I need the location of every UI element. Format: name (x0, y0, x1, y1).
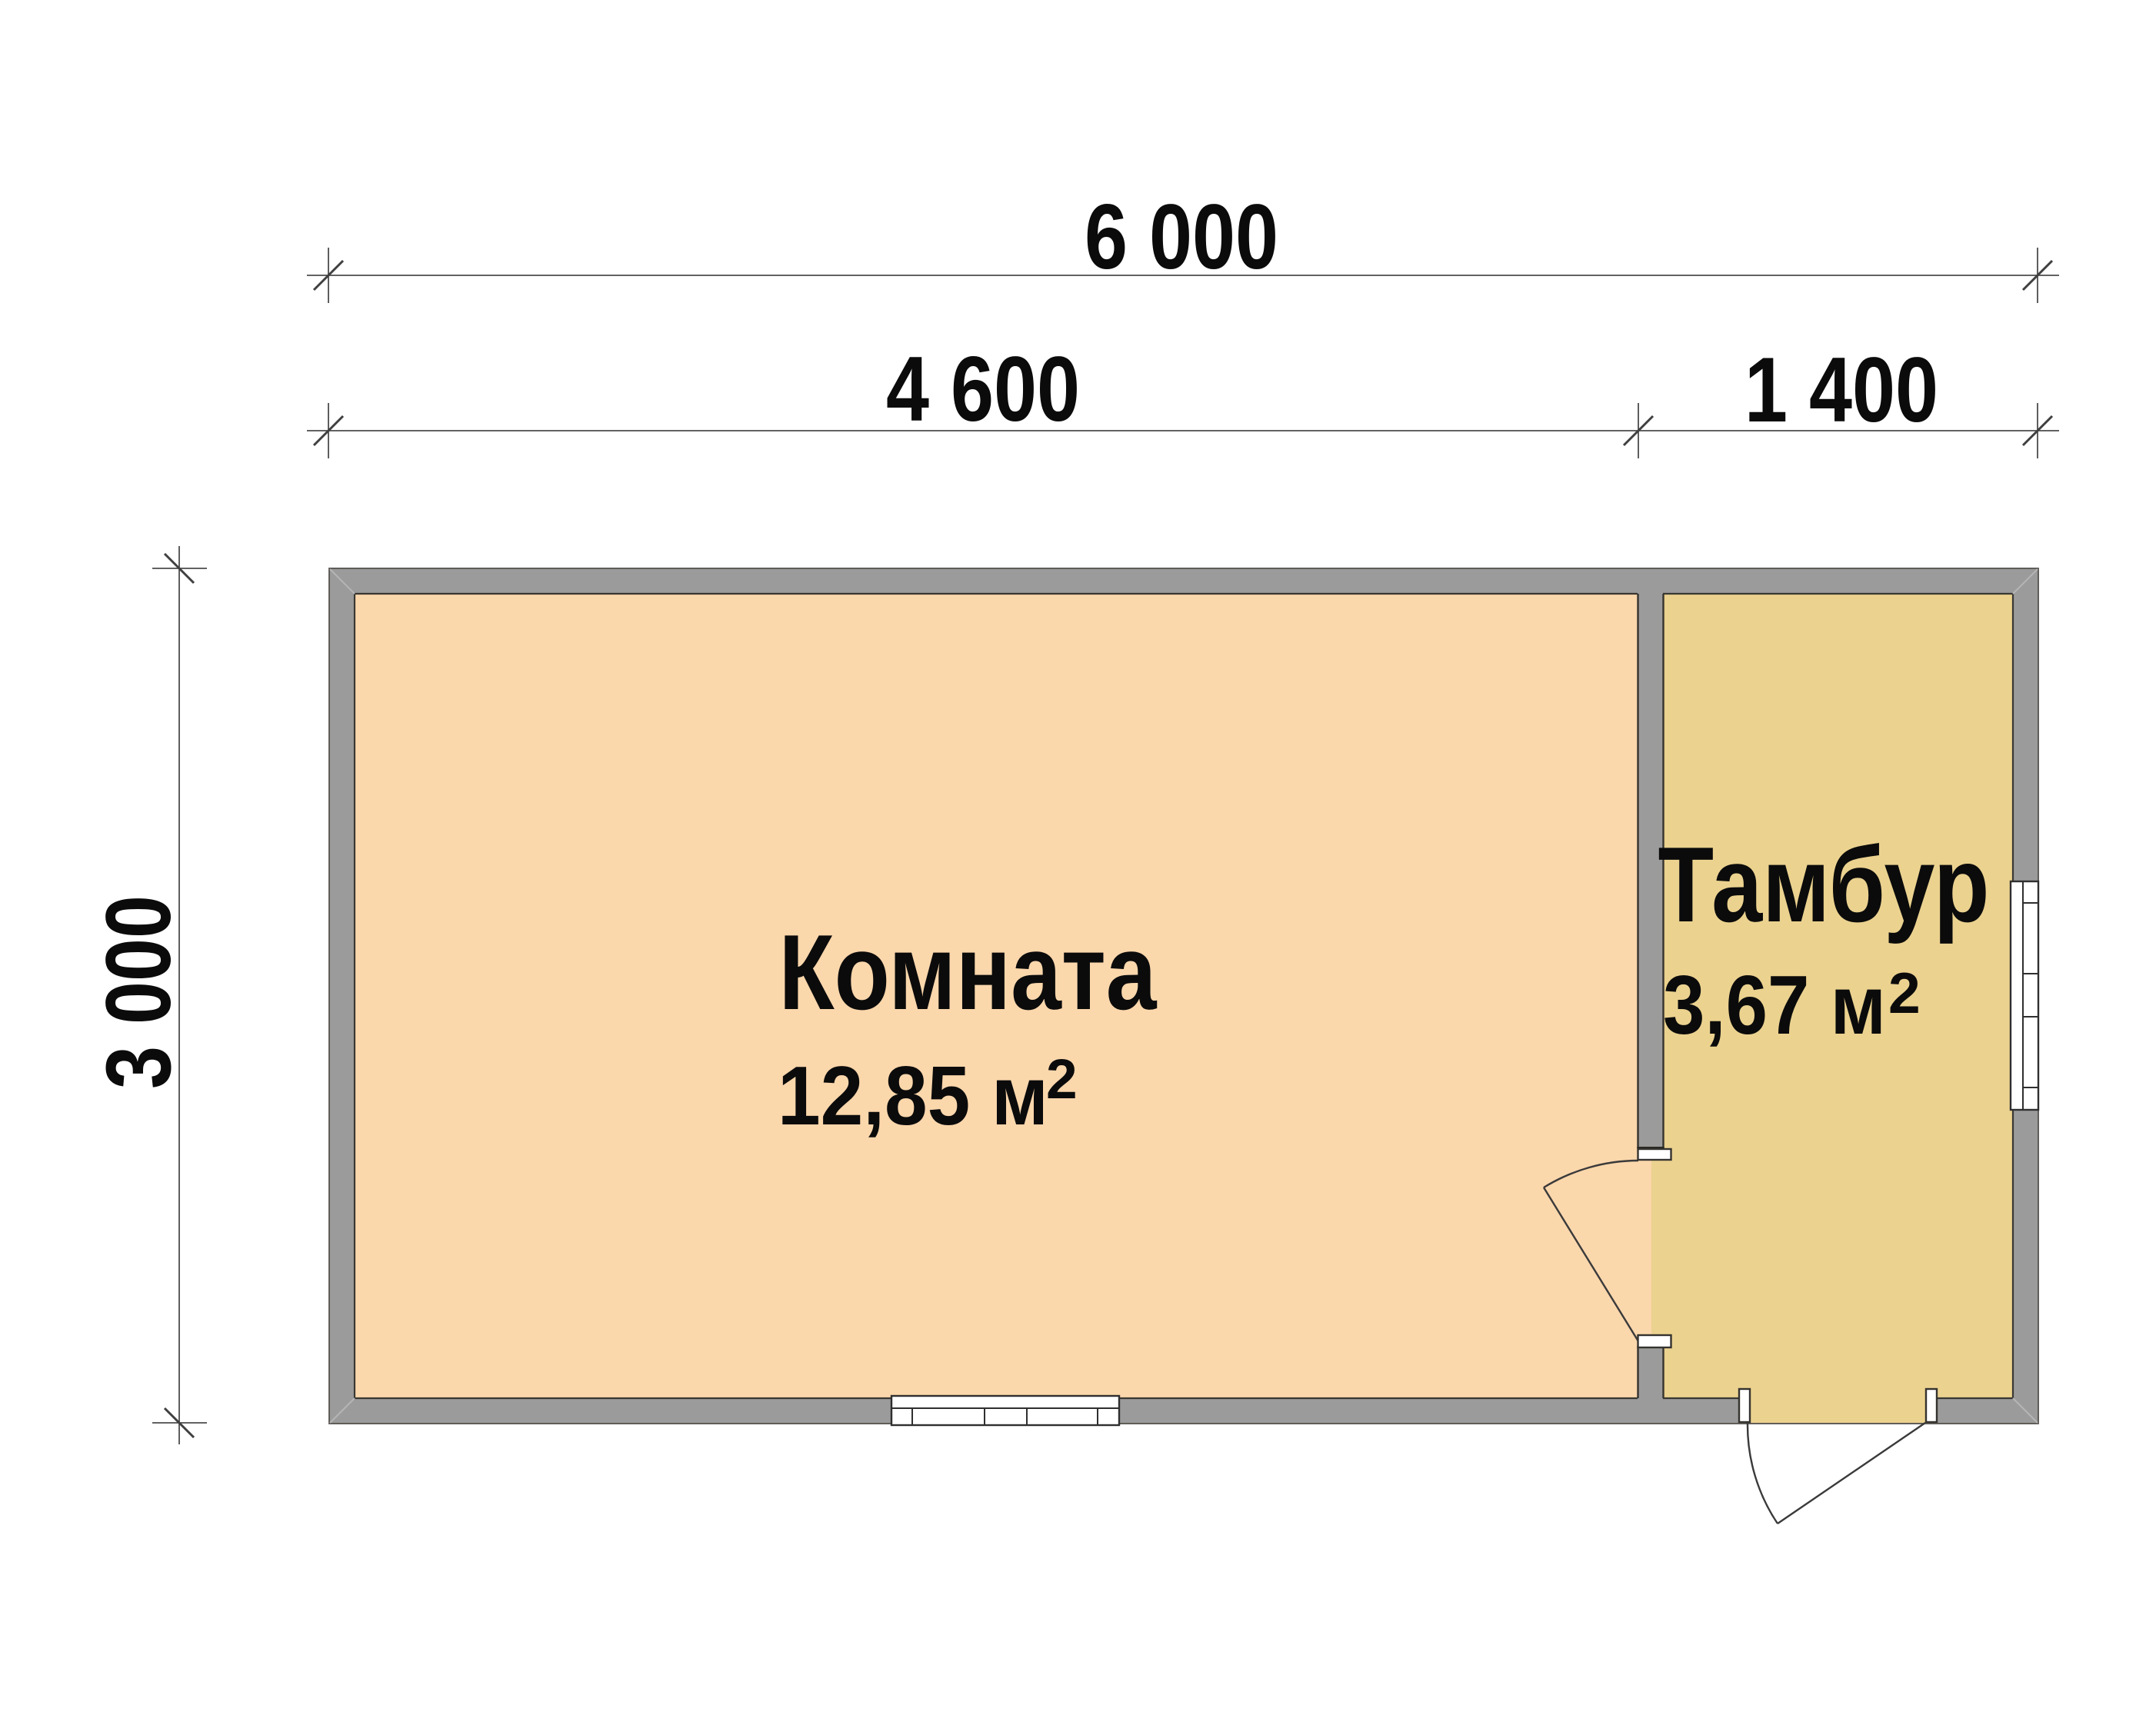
svg-text:Комната: Комната (779, 913, 1158, 1032)
svg-text:2: 2 (1888, 961, 1921, 1025)
svg-text:6 000: 6 000 (1085, 185, 1278, 288)
svg-text:3 000: 3 000 (87, 895, 190, 1089)
svg-text:12,85 м: 12,85 м (778, 1049, 1048, 1143)
svg-text:1 400: 1 400 (1744, 338, 1938, 441)
svg-text:4 600: 4 600 (886, 338, 1080, 441)
svg-text:Тамбур: Тамбур (1658, 825, 1990, 944)
svg-text:3,67 м: 3,67 м (1663, 958, 1886, 1052)
svg-text:2: 2 (1046, 1048, 1078, 1111)
